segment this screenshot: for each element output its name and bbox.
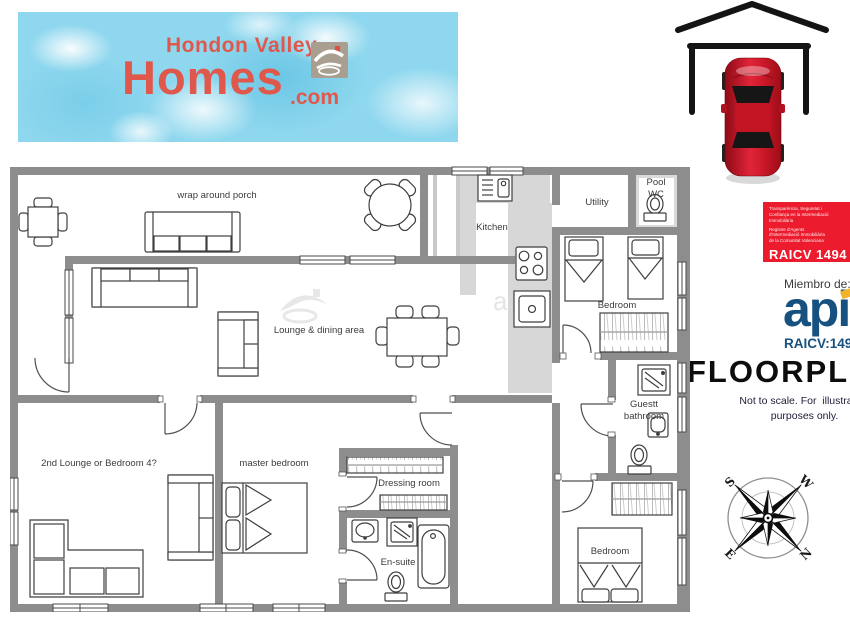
floorplan-note-line2: purposes only. [712, 409, 850, 424]
window [678, 363, 686, 393]
compass-rose: S W N E [715, 465, 821, 571]
kitchen-oven [514, 291, 550, 327]
window [65, 270, 73, 315]
window [678, 538, 686, 585]
badge-small-line: de la Comunitat Valenciana [769, 238, 850, 244]
room-label-porch: wrap around porch [177, 190, 256, 202]
lounge-sofa-large [92, 268, 197, 307]
raicv-badge: Transparència, Seguretat i Confiança en … [763, 202, 850, 262]
compass-north-label: N [797, 545, 815, 563]
floorplan: ale [10, 163, 690, 612]
master-bed [222, 483, 307, 553]
badge-small-line: Immobiliària [769, 218, 850, 224]
wardrobe [612, 483, 672, 515]
window [490, 167, 523, 175]
door [563, 325, 591, 353]
window [350, 256, 395, 264]
door [581, 404, 613, 436]
compass-icon: S W N E [715, 465, 821, 571]
door [347, 477, 377, 507]
room-label-utility: Utility [585, 197, 608, 209]
room-label-kitchen: Kitchen [476, 222, 508, 234]
window [65, 318, 73, 363]
kitchen-sink [478, 175, 512, 201]
twin-bed [628, 237, 663, 299]
door [347, 550, 377, 580]
compass-west-label: W [796, 472, 817, 493]
api-registry-number: RAICV:1494 [784, 336, 850, 351]
window [452, 167, 487, 175]
floorplan-note-line1: Not to scale. For illustration [712, 394, 850, 409]
window [678, 262, 686, 295]
garage-graphic [655, 0, 850, 190]
second-lounge-sofa [168, 475, 213, 560]
window [300, 256, 345, 264]
window [53, 604, 108, 612]
brand-banner: Hondon Valley Homes .com [18, 12, 458, 142]
room-label-pool-wc: Pool WC [638, 177, 674, 201]
double-bed [578, 528, 642, 602]
brand-house-icon [311, 42, 348, 78]
badge-code: RAICV 1494 [769, 247, 850, 262]
toilet [628, 445, 651, 474]
dining-set [376, 306, 459, 367]
floorplan-heading: FLOORPLAN [687, 354, 850, 390]
compass-east-label: E [722, 546, 738, 562]
ensuite-sink [352, 520, 378, 542]
porch-table-set [19, 198, 67, 246]
door [420, 413, 452, 445]
garage-car-icon [655, 0, 850, 190]
porch-round-table-set [362, 177, 417, 232]
window [678, 490, 686, 535]
room-label-bedroom-top: Bedroom [598, 300, 637, 312]
door [35, 358, 69, 392]
floorplan-drawing: ale [10, 163, 690, 612]
bathtub [418, 525, 449, 588]
room-label-en-suite: En-suite [381, 557, 416, 569]
wardrobe [347, 457, 443, 473]
window [10, 512, 18, 545]
window [273, 604, 325, 612]
page: Hondon Valley Homes .com [0, 0, 850, 620]
lounge-sofa-small [218, 312, 258, 376]
kitchen-hob [516, 247, 547, 280]
room-label-dressing-room: Dressing room [378, 478, 440, 490]
twin-bed [565, 237, 603, 301]
room-label-lounge: Lounge & dining area [274, 325, 364, 337]
door [165, 403, 197, 434]
window [678, 397, 686, 432]
compass-south-label: S [722, 474, 738, 490]
car-icon [721, 58, 785, 184]
floorplan-note: Not to scale. For illustration purposes … [712, 394, 850, 423]
room-label-second-lounge: 2nd Lounge or Bedroom 4? [41, 458, 157, 470]
brand-name-main: Homes [122, 50, 284, 105]
window [10, 478, 18, 510]
brand-name-suffix: .com [290, 86, 339, 110]
room-label-master-bedroom: master bedroom [239, 458, 308, 470]
shower [387, 518, 417, 546]
wardrobe [600, 313, 668, 352]
toilet [385, 572, 407, 601]
door [562, 481, 593, 512]
shower [638, 365, 670, 395]
porch-sofa [145, 212, 240, 252]
wardrobe [380, 495, 447, 510]
kitchen-counters [433, 175, 552, 393]
room-label-guest-bathroom: Guestt bathroom [614, 399, 674, 423]
corner-sofa [30, 520, 143, 597]
watermark-logo-icon [280, 289, 328, 322]
brand-house-icon-svg [311, 42, 348, 78]
window [678, 298, 686, 330]
room-label-bedroom-bottom: Bedroom [591, 546, 630, 558]
window [200, 604, 253, 612]
